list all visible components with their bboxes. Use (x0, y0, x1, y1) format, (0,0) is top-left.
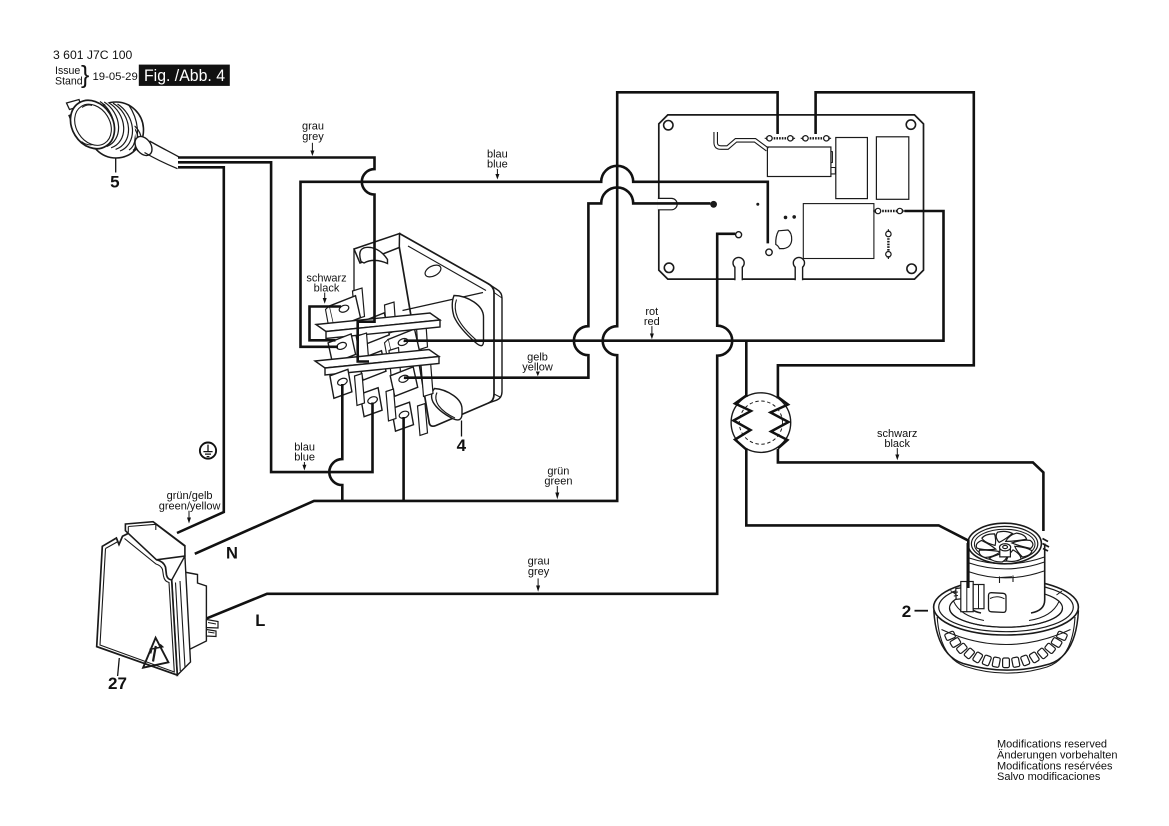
svg-text:27: 27 (108, 674, 127, 693)
svg-text:black: black (884, 438, 910, 450)
svg-text:2: 2 (902, 602, 911, 621)
svg-text:3 601 J7C 100: 3 601 J7C 100 (53, 48, 133, 62)
svg-text:L: L (255, 612, 265, 630)
svg-text:green: green (544, 476, 572, 488)
svg-text:19-05-29: 19-05-29 (93, 71, 138, 83)
svg-text:5: 5 (110, 172, 119, 191)
svg-text:black: black (314, 282, 340, 294)
svg-text:red: red (644, 316, 660, 328)
svg-text:grey: grey (528, 566, 550, 578)
svg-text:}: } (81, 61, 89, 89)
svg-text:green/yellow: green/yellow (159, 500, 221, 512)
svg-text:4: 4 (457, 436, 467, 455)
svg-text:Fig. /Abb. 4: Fig. /Abb. 4 (144, 66, 225, 85)
svg-text:blue: blue (487, 159, 508, 171)
svg-text:grey: grey (302, 131, 324, 143)
svg-text:Salvo modificaciones: Salvo modificaciones (997, 771, 1101, 783)
svg-text:blue: blue (294, 452, 315, 464)
svg-text:N: N (226, 545, 238, 563)
svg-text:Stand: Stand (55, 76, 83, 88)
